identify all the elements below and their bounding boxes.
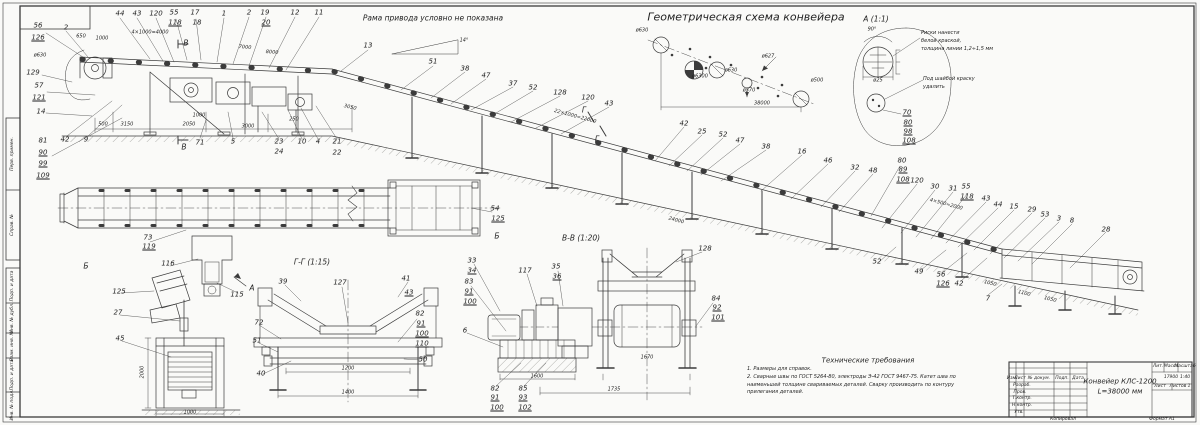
doc-title-line2: L=38000 мм (1098, 389, 1143, 396)
plan-view (58, 180, 500, 296)
doc-title-line1: Конвейер КЛС-1200 (1083, 379, 1156, 386)
section-vv (488, 248, 702, 400)
doc-scale: 1:40 (1180, 376, 1190, 381)
leader-lines (42, 17, 1106, 386)
section-gg (254, 280, 442, 402)
drawing-sheet: 2444312055118171812192012111356126129571… (0, 0, 1200, 425)
detail-a (854, 28, 952, 146)
drawing-linework (0, 0, 1200, 425)
geometric-scheme (648, 37, 814, 112)
doc-mass: 17900 (1164, 376, 1178, 381)
view-b-takeup (142, 270, 240, 416)
